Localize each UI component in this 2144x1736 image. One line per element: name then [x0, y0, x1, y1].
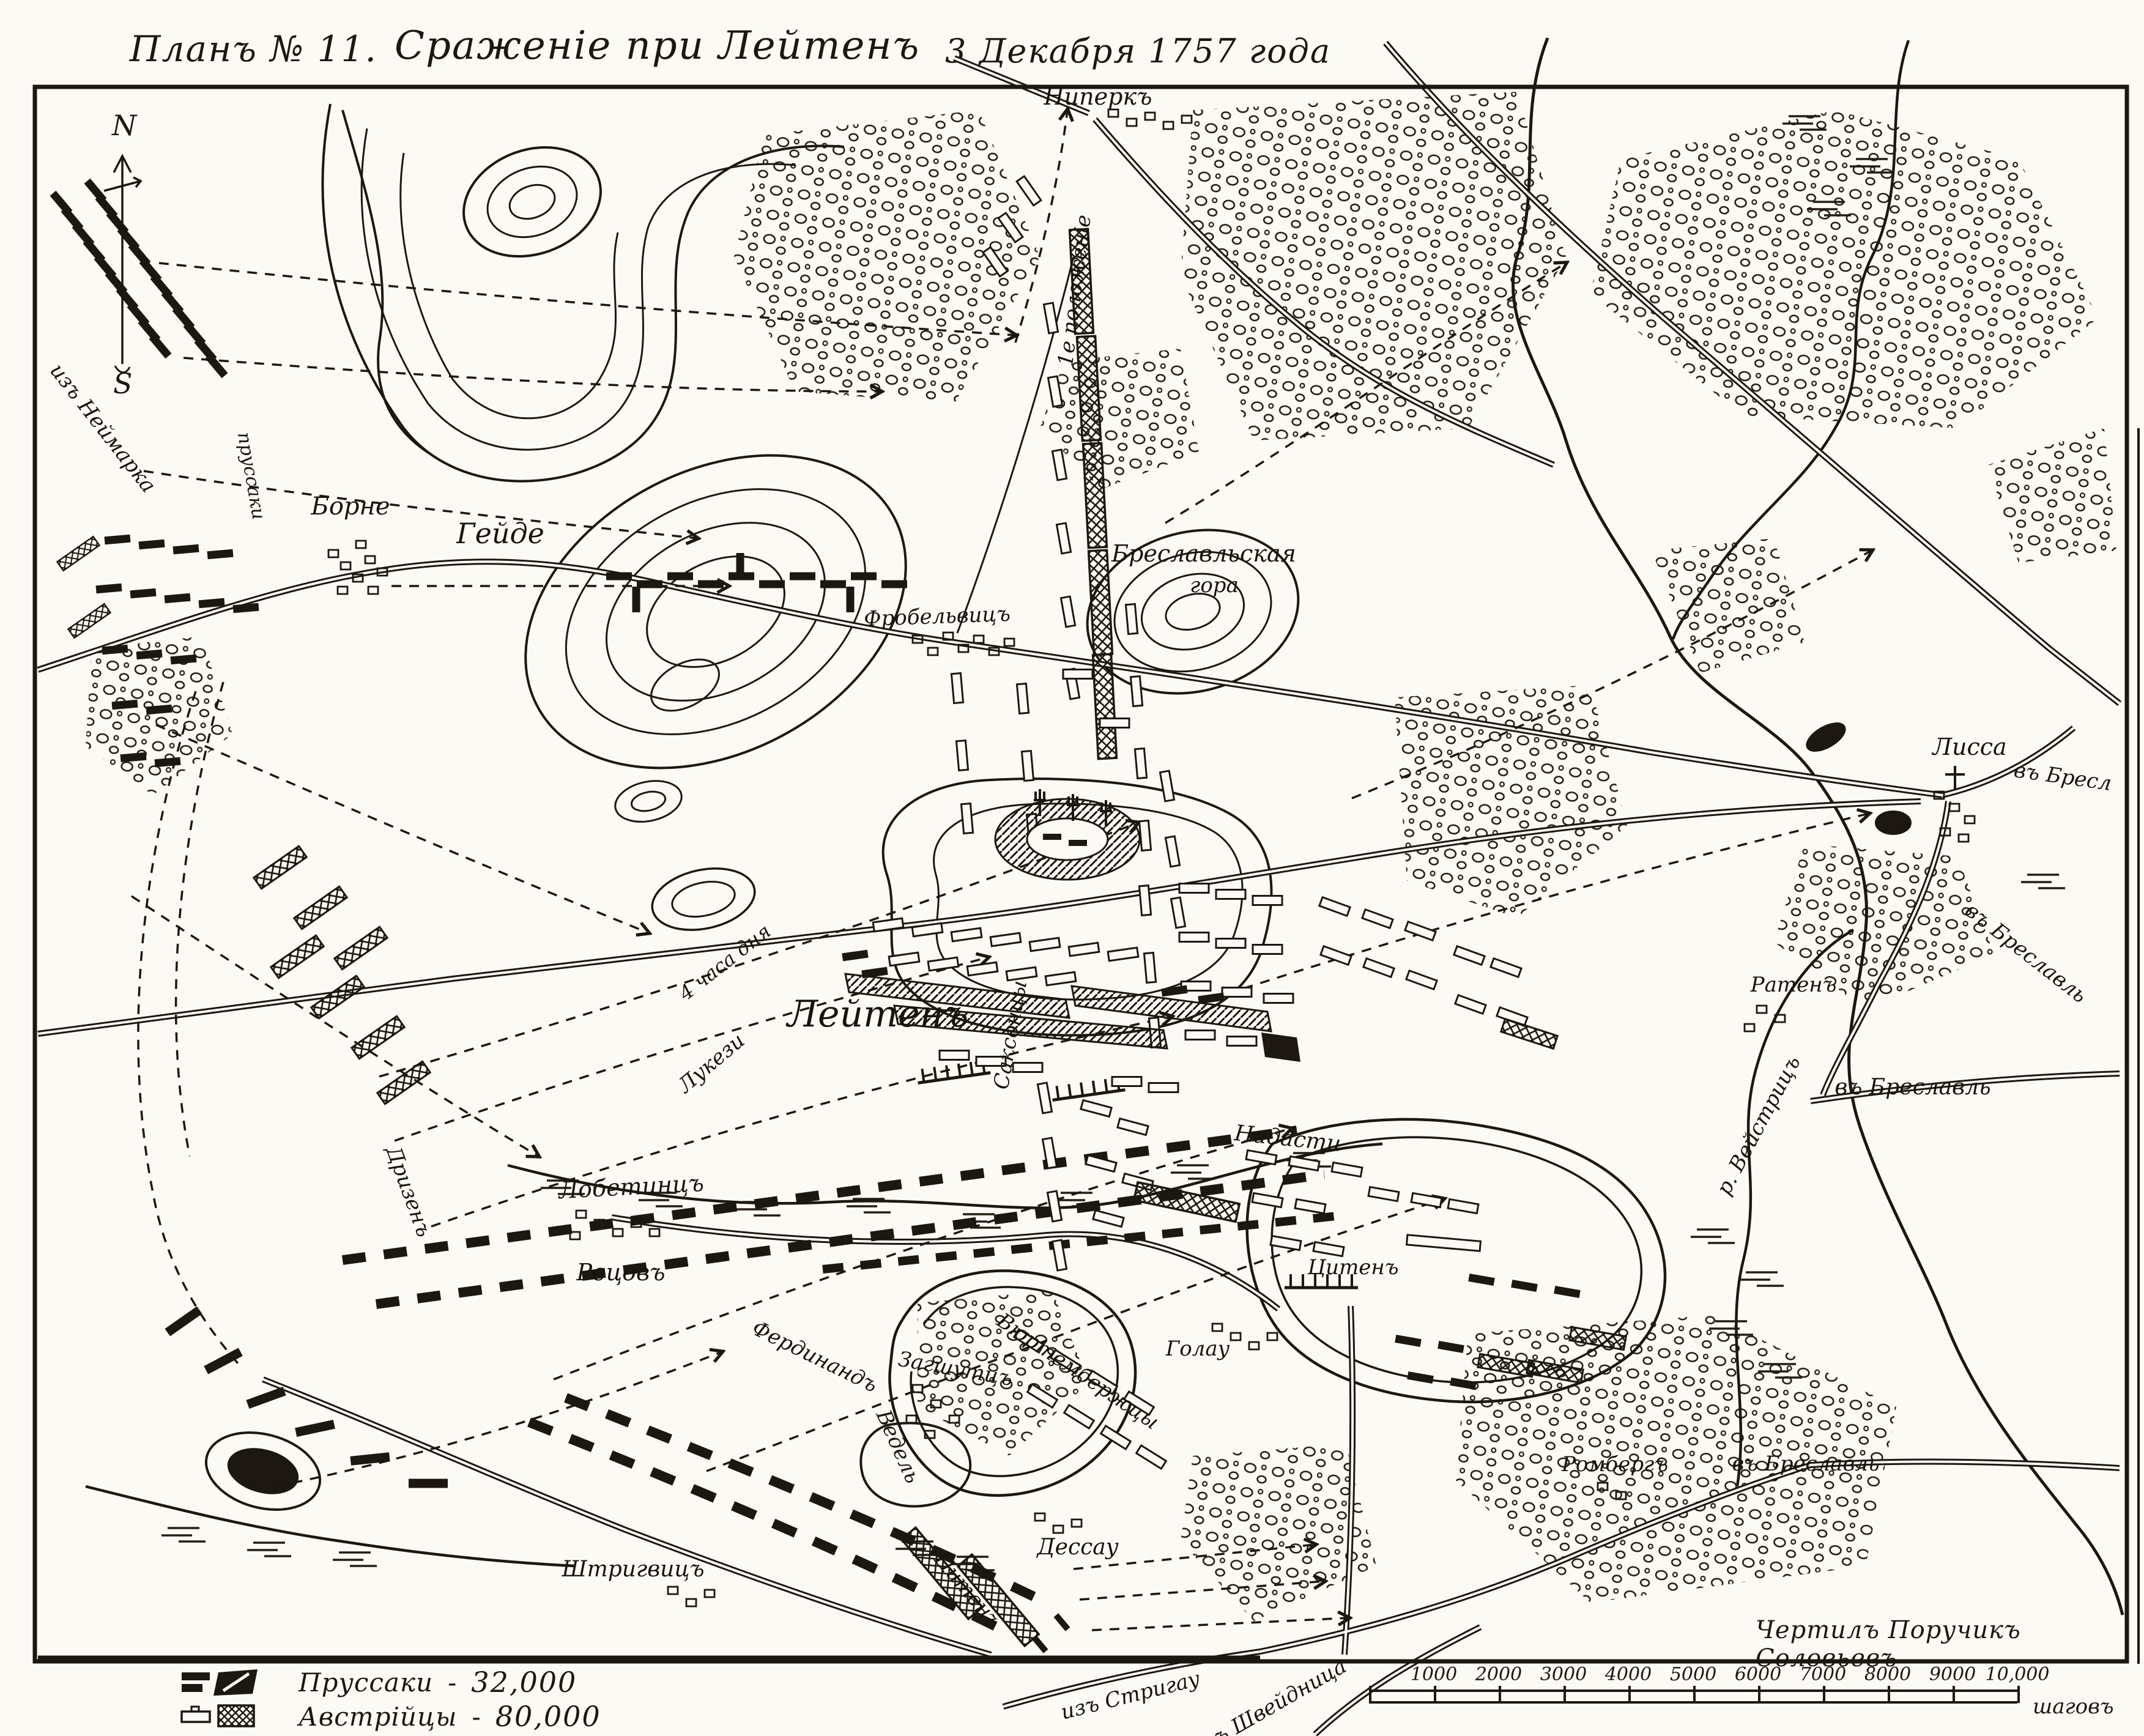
- prussian-columns-nw: [50, 179, 228, 379]
- hill-contours: [198, 104, 1317, 1522]
- compass-north-label: N: [112, 109, 136, 142]
- legend-prussians-label: Пруссаки: [299, 1667, 433, 1697]
- compass-icon: [104, 156, 141, 373]
- legend-austrians-value: 80,000: [495, 1700, 601, 1733]
- map-artwork: [0, 0, 2144, 1736]
- scale-tick-5000: 5000: [1670, 1664, 1716, 1685]
- prussian-symbols-icon: [180, 1667, 287, 1697]
- legend-separator: -: [444, 1667, 460, 1697]
- scale-tick-2000: 2000: [1475, 1664, 1522, 1685]
- scale-tick-mark: [1499, 1686, 1501, 1703]
- scale-tick-mark: [1628, 1686, 1631, 1703]
- scale-tick-mark: [2017, 1686, 2020, 1703]
- legend: Пруссаки - 32,000 Австрійцы - 80,000: [180, 1665, 601, 1734]
- scale-tick-mark: [1823, 1686, 1825, 1703]
- scale-tick-mark: [1888, 1686, 1890, 1703]
- scale-tick-mark: [1693, 1686, 1696, 1703]
- scale-unit-label: шаговъ: [2033, 1694, 2114, 1719]
- austrian-first-position: [983, 176, 1116, 759]
- scale-bar: 10002000300040005000600070008000900010,0…: [1369, 1663, 2140, 1730]
- scale-tick-1000: 1000: [1411, 1664, 1457, 1685]
- scale-tick-3000: 3000: [1540, 1664, 1587, 1685]
- map-sheet: Планъ № 11. Сраженіе при Лейтенъ 3 Декаб…: [0, 0, 2144, 1736]
- prussian-cavalry-driesen: [254, 846, 430, 1104]
- compass-south-label: S: [113, 367, 133, 400]
- scale-tick-mark: [1953, 1686, 1955, 1703]
- cartographer-credit: Чертилъ Поручикъ Соловьевъ: [1756, 1616, 2144, 1672]
- legend-austrians-label: Австрійцы: [299, 1702, 457, 1732]
- austrian-symbols-icon: [180, 1702, 287, 1731]
- scale-tick-mark: [1563, 1686, 1566, 1703]
- legend-separator: -: [468, 1702, 484, 1732]
- scale-tick-mark: [1758, 1686, 1760, 1703]
- scale-tick-4000: 4000: [1605, 1664, 1652, 1685]
- scale-tick-mark: [1434, 1686, 1436, 1703]
- legend-prussians-value: 32,000: [471, 1666, 577, 1699]
- legend-row-prussians: Пруссаки - 32,000: [180, 1665, 601, 1699]
- legend-row-austrians: Австрійцы - 80,000: [180, 1699, 601, 1734]
- scale-tick-mark: [1369, 1686, 1371, 1703]
